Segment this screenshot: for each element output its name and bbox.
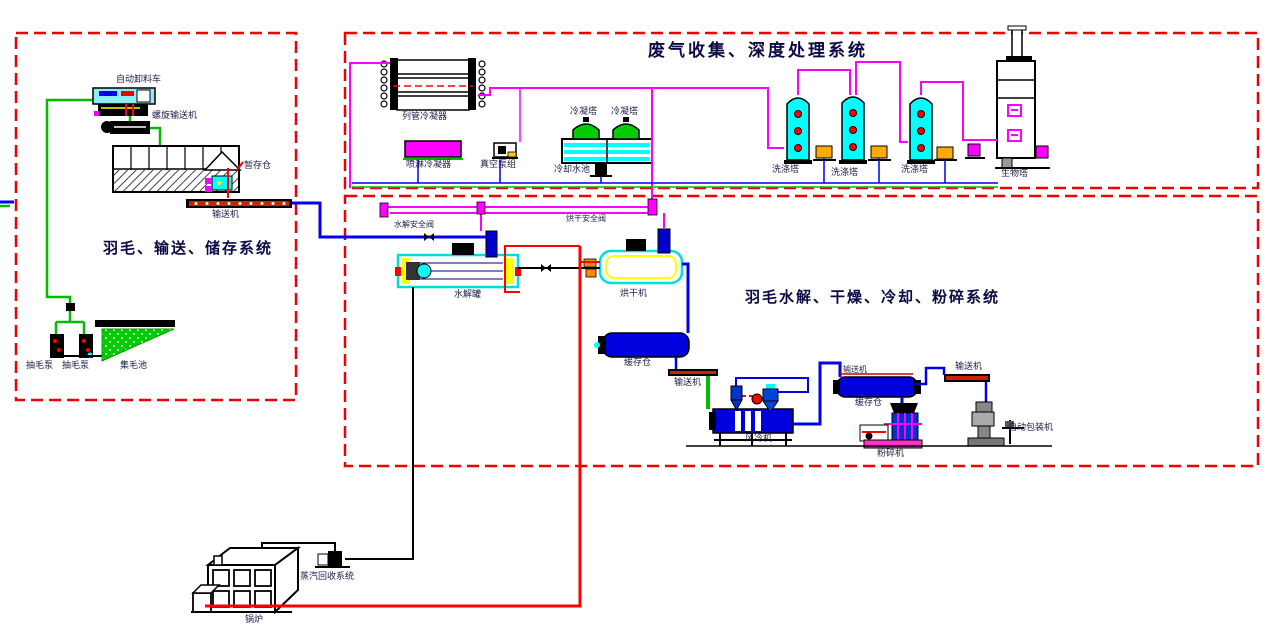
vacuum-pump-set: [492, 143, 518, 158]
label-crusher: 粉碎机: [877, 450, 904, 459]
label-conveyor-2: 输送机: [843, 366, 867, 374]
label-steam-recovery: 蒸汽回收系统: [300, 573, 354, 582]
conveyor-1: [668, 369, 718, 376]
label-boiler: 锅炉: [245, 616, 263, 625]
label-conveyor-left: 输送机: [212, 211, 239, 220]
label-buffer-bin-2: 缓存仓: [855, 399, 882, 408]
feed-line-valve: [424, 233, 434, 241]
condensate-lines: [262, 287, 413, 559]
label-cooling-pool: 冷却水池: [554, 166, 590, 175]
steam-recovery-unit: [315, 551, 350, 567]
label-dryer: 烘干机: [620, 290, 647, 299]
feather-pool: [95, 320, 175, 361]
title-feather-system: 羽毛、输送、储存系统: [103, 237, 273, 258]
label-hydrolysis-valve: 水解安全阀: [394, 221, 434, 229]
tube-condenser: [381, 58, 485, 110]
label-feather-pump-2: 抽毛泵: [62, 362, 89, 371]
label-packer: 自动包装机: [1008, 424, 1053, 433]
label-cond-tower-1: 冷凝塔: [570, 108, 597, 117]
dryer: [584, 229, 682, 283]
diagram-canvas: [0, 0, 1280, 637]
label-air-cooler: 风冷机: [745, 435, 772, 444]
label-tube-condenser: 列管冷凝器: [402, 113, 447, 122]
title-gas-system: 废气收集、深度处理系统: [648, 36, 868, 61]
left-conveyor: [186, 199, 292, 208]
label-hydrolysis-tank: 水解罐: [454, 291, 481, 300]
bin2-to-conveyor3-pipe: [915, 368, 986, 404]
label-conveyor-1: 输送机: [674, 379, 701, 388]
label-bio-tower: 生物塔: [1001, 170, 1028, 179]
label-scrubber-3: 洗涤塔: [901, 166, 928, 175]
label-feather-pump-1: 抽毛泵: [26, 362, 53, 371]
label-buffer-bin-1: 缓存仓: [624, 359, 651, 368]
cooler-cyclones: [731, 378, 808, 412]
bio-tower: [965, 26, 1050, 168]
label-scrubber-1: 洗涤塔: [772, 166, 799, 175]
screw-conveyor-machine: [101, 121, 150, 134]
cooler-to-bin2-pipe: [793, 363, 840, 424]
crusher: [860, 403, 922, 448]
label-dryer-valve: 烘干安全阀: [566, 215, 606, 223]
label-screw-conveyor: 螺旋输送机: [152, 112, 197, 121]
label-auto-unloader: 自动卸料车: [116, 76, 161, 85]
auto-unloader-machine: [93, 88, 155, 116]
title-hydrolysis-system: 羽毛水解、干燥、冷却、粉碎系统: [745, 286, 1000, 307]
process-flow-diagram: 废气收集、深度处理系统 羽毛水解、干燥、冷却、粉碎系统 羽毛、输送、储存系统 自…: [0, 0, 1280, 637]
feather-pumps: [50, 303, 102, 358]
hydrolysis-tank: [395, 231, 521, 287]
green-feather-pipes: [0, 100, 160, 334]
scrubber-towers: [784, 97, 957, 164]
boiler: [191, 548, 298, 612]
cooling-pool: [562, 139, 652, 163]
label-conveyor-3: 输送机: [955, 363, 982, 372]
label-buffer-bin-left: 暂存仓: [244, 162, 271, 171]
label-scrubber-2: 洗涤塔: [831, 169, 858, 178]
spray-condenser: [403, 141, 463, 159]
label-cond-tower-2: 冷凝塔: [611, 108, 638, 117]
label-vacuum-pump: 真空泵组: [480, 161, 516, 170]
label-feather-pool: 集毛池: [120, 362, 147, 371]
conveyor-3: [944, 374, 990, 382]
label-spray-condenser: 喷淋冷凝器: [406, 161, 451, 170]
